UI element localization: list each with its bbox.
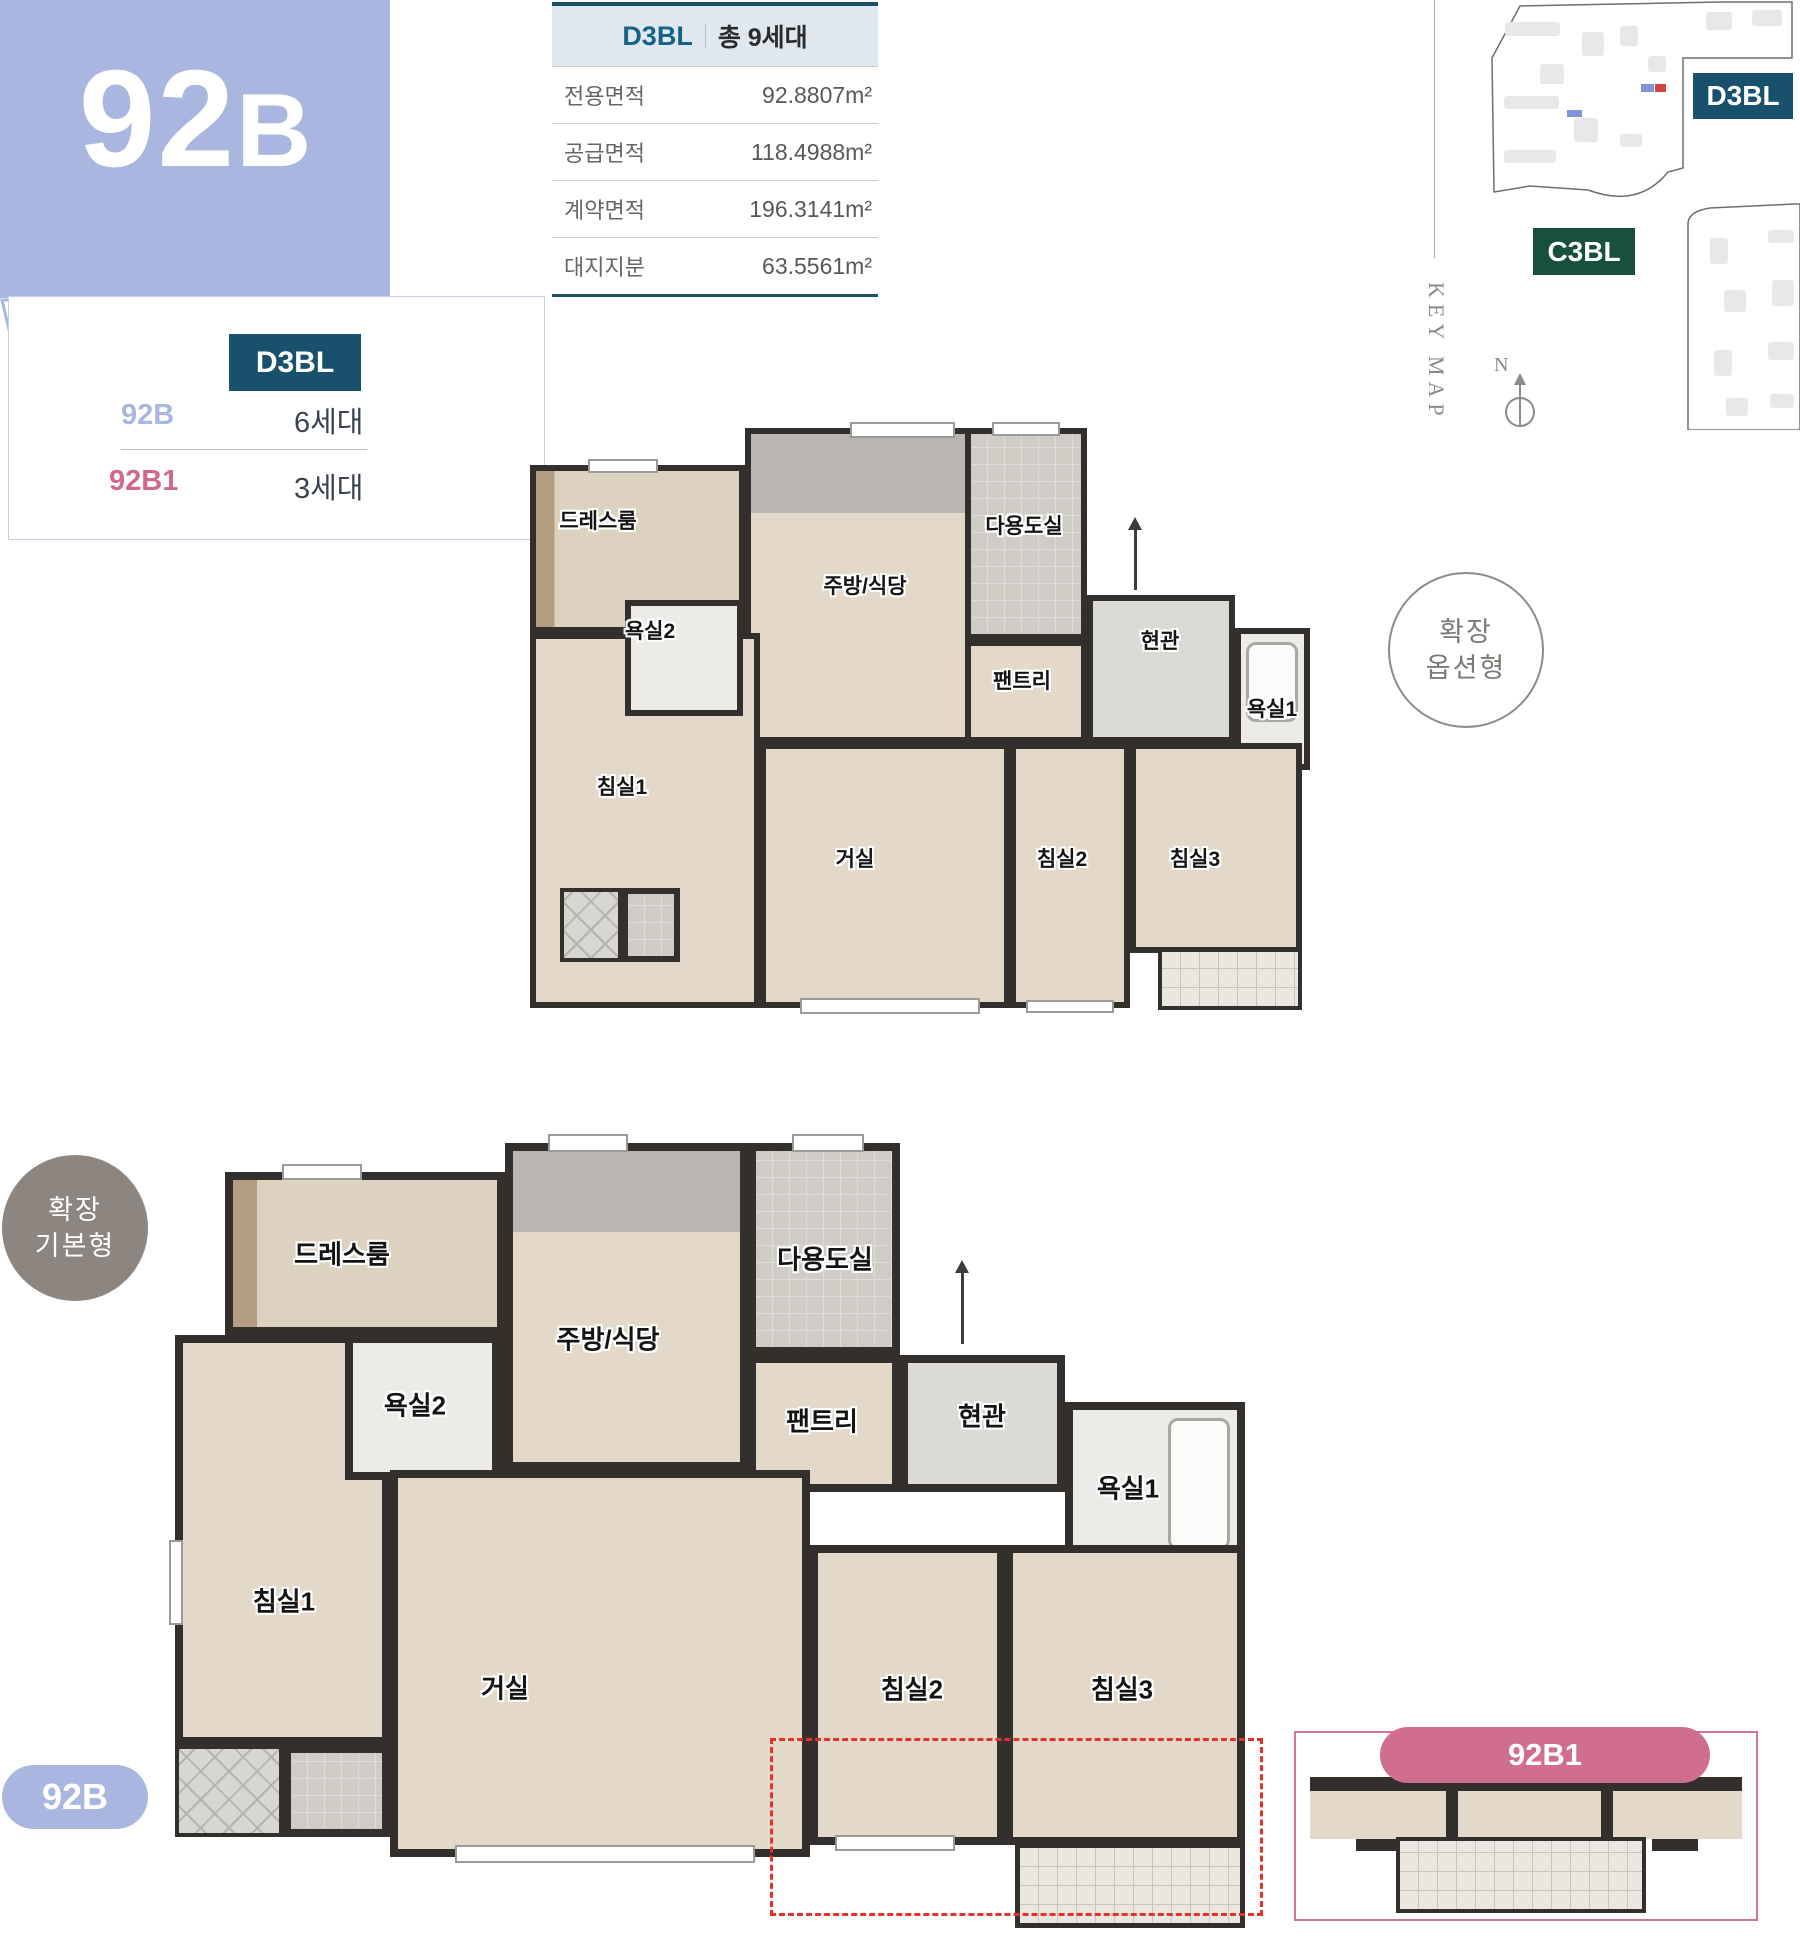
room-label: 욕실1 (1247, 693, 1297, 723)
window (588, 459, 658, 473)
entrance-arrow-icon (955, 1260, 969, 1273)
window (992, 422, 1060, 436)
unit-type-92b1: 92B1 (109, 465, 178, 498)
card-divider (121, 449, 367, 450)
window (548, 1134, 628, 1152)
entrance-arrow-icon (1128, 517, 1142, 530)
balcony (1158, 948, 1302, 1010)
room-kitchen (505, 1143, 748, 1470)
room-label: 침실1 (597, 771, 647, 801)
window (282, 1164, 362, 1180)
tag-line: 옵션형 (1426, 650, 1507, 686)
row-value: 63.5561m² (762, 253, 872, 280)
table-row: 계약면적 196.3141m² (552, 180, 878, 237)
room-label: 주방/식당 (823, 570, 906, 600)
room-label: 거실 (836, 843, 875, 873)
window (1026, 1000, 1114, 1013)
room-label: 욕실2 (384, 1386, 446, 1423)
area-table-block: D3BL (622, 21, 693, 52)
room-label: 침실3 (1170, 843, 1220, 873)
room-label: 침실2 (1037, 843, 1087, 873)
window (792, 1134, 864, 1152)
unit-type-92b: 92B (121, 399, 174, 432)
row-value: 196.3141m² (749, 196, 872, 223)
window (169, 1540, 183, 1625)
inset-wall (1601, 1791, 1613, 1839)
wardrobe (560, 888, 622, 962)
row-value: 118.4988m² (751, 139, 872, 166)
table-row: 공급면적 118.4988m² (552, 123, 878, 180)
room-label: 팬트리 (993, 665, 1051, 695)
area-table-total: 총 9세대 (718, 18, 808, 54)
option-area-dashed-outline (770, 1738, 1263, 1916)
unit-code-number: 92 (79, 42, 237, 196)
inset-wall (1652, 1839, 1698, 1851)
room-label: 욕실2 (625, 615, 675, 645)
households-92b: 6세대 (294, 399, 364, 441)
utility-balcony (622, 888, 680, 962)
room-living (390, 1470, 810, 1857)
room-label: 드레스룸 (559, 505, 636, 535)
bathtub (1168, 1418, 1230, 1550)
room-label: 다용도실 (777, 1240, 873, 1277)
row-value: 92.8807m² (762, 82, 872, 109)
keymap-divider-line (1434, 0, 1435, 258)
room-label: 욕실1 (1097, 1469, 1159, 1506)
household-card: D3BL 92B 6세대 92B1 3세대 (8, 296, 545, 540)
room-label: 주방/식당 (557, 1320, 660, 1357)
inset-floor (1310, 1791, 1742, 1839)
room-label: 드레스룸 (294, 1235, 390, 1272)
tag-line: 확장 (48, 1192, 102, 1228)
households-92b1: 3세대 (294, 465, 364, 507)
map-badge-d3bl: D3BL (1693, 73, 1793, 119)
plan-tag-92b: 92B (2, 1765, 148, 1829)
table-row: 전용면적 92.8807m² (552, 66, 878, 123)
entrance-arrow-icon (1134, 528, 1137, 590)
room-living (760, 743, 1010, 1008)
row-label: 대지지분 (564, 250, 645, 282)
header-divider (705, 24, 706, 48)
inset-balcony (1396, 1837, 1646, 1913)
area-table: D3BL 총 9세대 전용면적 92.8807m² 공급면적 118.4988m… (552, 2, 878, 297)
room-label: 현관 (958, 1397, 1006, 1434)
map-badge-c3bl: C3BL (1533, 228, 1635, 275)
room-label: 거실 (481, 1669, 529, 1706)
row-label: 계약면적 (564, 193, 645, 225)
table-row: 대지지분 63.5561m² (552, 237, 878, 294)
tag-line: 확장 (1439, 614, 1493, 650)
room-label: 침실2 (881, 1670, 943, 1707)
area-table-header: D3BL 총 9세대 (552, 6, 878, 66)
window (800, 998, 980, 1014)
room-label: 현관 (1141, 625, 1180, 655)
tag-expansion-basic: 확장 기본형 (2, 1155, 148, 1301)
room-entrance (1087, 595, 1235, 743)
tag-line: 기본형 (35, 1228, 116, 1264)
unit-code-letter: B (236, 73, 311, 189)
room-label: 침실3 (1091, 1670, 1153, 1707)
window (455, 1845, 755, 1863)
floor-plan-page: 92B D3BL 92B 6세대 92B1 3세대 D3BL 총 9세대 전용면… (0, 0, 1800, 1954)
row-label: 공급면적 (564, 136, 645, 168)
entrance-arrow-icon (961, 1272, 964, 1344)
plan-tag-92b1: 92B1 (1380, 1727, 1710, 1783)
room-label: 침실1 (253, 1582, 315, 1619)
window (850, 422, 955, 438)
tag-expansion-option: 확장 옵션형 (1388, 572, 1544, 728)
room-label: 다용도실 (985, 510, 1062, 540)
wardrobe (175, 1745, 283, 1837)
block-badge: D3BL (229, 334, 361, 391)
inset-wall (1446, 1791, 1458, 1839)
keymap-title: KEY MAP (1423, 282, 1449, 422)
utility-balcony (283, 1745, 390, 1837)
unit-code-title: 92B (0, 40, 390, 199)
row-label: 전용면적 (564, 79, 645, 111)
room-label: 팬트리 (786, 1402, 858, 1439)
north-compass-icon: N (1492, 354, 1552, 440)
room-bed2 (1010, 743, 1130, 1008)
